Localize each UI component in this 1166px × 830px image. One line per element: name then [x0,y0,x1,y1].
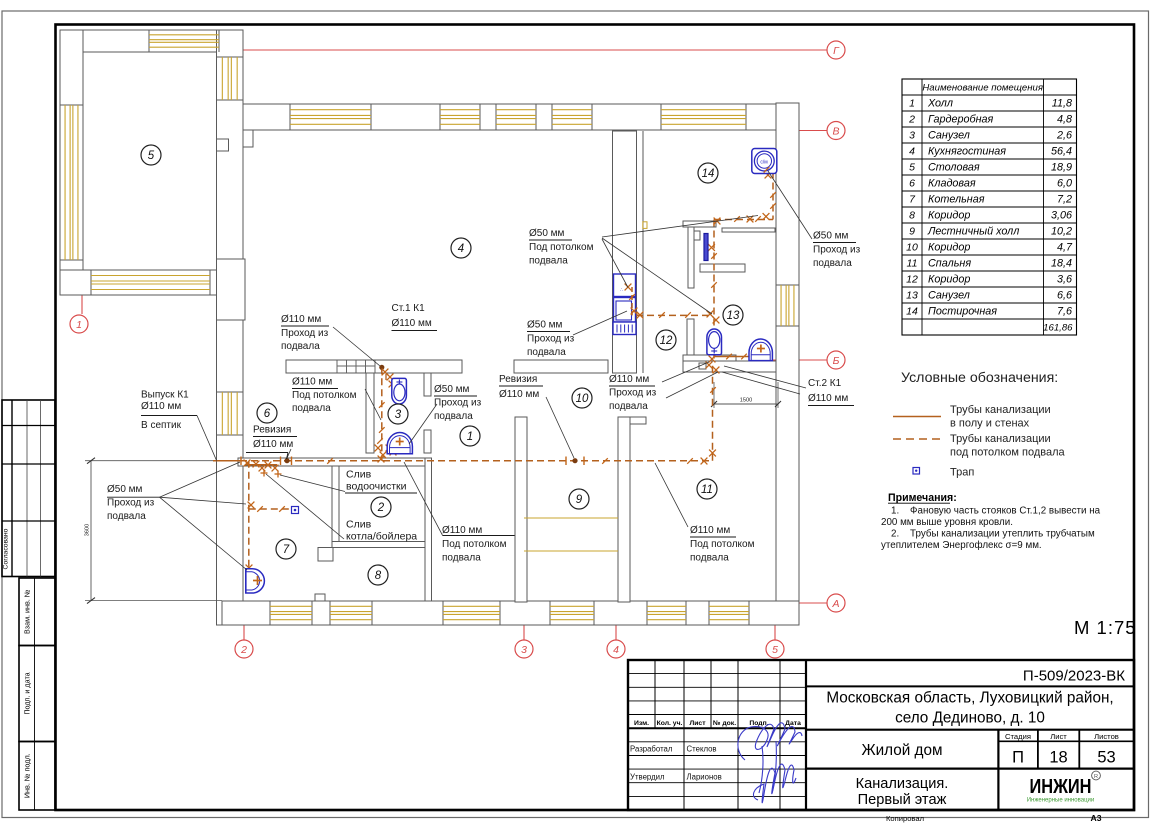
svg-text:6,0: 6,0 [1057,178,1072,190]
svg-text:Ø110 мм: Ø110 мм [499,389,539,400]
svg-text:с/м: с/м [760,159,768,165]
svg-text:подвала: подвала [281,341,320,352]
svg-text:Ø110 мм: Ø110 мм [609,374,649,385]
svg-text:8: 8 [909,210,915,222]
svg-text:Ларионов: Ларионов [687,773,722,782]
svg-text:2: 2 [240,644,247,656]
svg-text:3: 3 [909,130,915,142]
svg-text:Ревизия: Ревизия [499,374,537,385]
svg-text:Листов: Листов [1094,732,1119,741]
svg-text:3,06: 3,06 [1051,210,1072,222]
svg-text:10,2: 10,2 [1051,226,1072,238]
svg-text:Ø110 мм: Ø110 мм [808,393,848,404]
svg-text:6: 6 [909,178,915,190]
svg-text:Коридор: Коридор [928,242,970,254]
svg-text:1: 1 [467,431,473,443]
svg-text:7: 7 [283,544,290,556]
svg-text:Условные обозначения:: Условные обозначения: [901,370,1058,386]
svg-text:Проход из: Проход из [107,498,155,509]
svg-text:Ø50 мм: Ø50 мм [813,231,849,242]
svg-text:Ø110 мм: Ø110 мм [253,439,293,450]
svg-text:подвала: подвала [690,553,729,564]
svg-text:10: 10 [906,242,918,254]
svg-text:подвала: подвала [529,256,568,267]
svg-text:Санузел: Санузел [928,130,970,142]
svg-text:3600: 3600 [85,524,91,536]
svg-text:Спальня: Спальня [928,258,971,270]
svg-text:Ø110 мм: Ø110 мм [690,525,730,536]
svg-text:Коридор: Коридор [928,274,970,286]
svg-text:200 мм выше уровня кровли.: 200 мм выше уровня кровли. [881,517,1013,528]
svg-text:1: 1 [909,98,915,110]
svg-text:Московская область, Луховицкий: Московская область, Луховицкий район, [826,690,1113,707]
svg-text:Ст.1 К1: Ст.1 К1 [392,303,426,314]
svg-text:Котельная: Котельная [928,194,985,206]
svg-text:Ø50 мм: Ø50 мм [527,320,563,331]
svg-text:11: 11 [701,484,713,496]
svg-text:Первый этаж: Первый этаж [858,792,947,808]
svg-text:Дата: Дата [785,720,801,727]
svg-text:Проход из: Проход из [813,245,861,256]
svg-text:Под потолком: Под потолком [442,539,507,550]
svg-text:Взам. инв. №: Взам. инв. № [23,589,32,634]
svg-text:Гардеробная: Гардеробная [928,114,994,126]
svg-text:подвала: подвала [813,258,852,269]
svg-text:П-509/2023-ВК: П-509/2023-ВК [1023,668,1125,685]
svg-text:1500: 1500 [740,398,752,404]
svg-text:6: 6 [264,408,271,420]
svg-text:Согласовано: Согласовано [3,528,10,569]
svg-text:Коридор: Коридор [928,210,970,222]
svg-text:7,2: 7,2 [1057,194,1072,206]
svg-text:Проход из: Проход из [609,388,657,399]
svg-text:18,9: 18,9 [1051,162,1072,174]
svg-text:Слив: Слив [346,469,372,481]
svg-text:П: П [1012,749,1024,767]
svg-text:161,86: 161,86 [1043,323,1073,334]
svg-text:Выпуск К1: Выпуск К1 [141,390,189,401]
svg-text:Подп. и дата: Подп. и дата [23,672,32,714]
svg-text:4,8: 4,8 [1057,114,1072,126]
svg-text:Ревизия: Ревизия [253,425,291,436]
svg-text:Лист: Лист [689,720,706,727]
svg-text:Ø110 мм: Ø110 мм [281,314,321,325]
svg-text:5: 5 [772,644,778,656]
svg-text:Ø110 мм: Ø110 мм [141,401,181,412]
svg-text:Лестничный холл: Лестничный холл [927,226,1019,238]
svg-text:котла/бойлера: котла/бойлера [346,531,417,543]
svg-text:Ø50 мм: Ø50 мм [529,228,565,239]
svg-text:Примечания:: Примечания: [888,492,957,504]
svg-text:Ø50 мм: Ø50 мм [434,384,470,395]
svg-text:Холл: Холл [927,98,953,110]
svg-text:4,7: 4,7 [1057,242,1073,254]
svg-text:ИНЖИН: ИНЖИН [1030,775,1092,798]
svg-text:1. Фановую часть стояков Ст: 1. Фановую часть стояков Ст.1,2 вывести … [891,506,1101,517]
svg-text:Инженерные инновации: Инженерные инновации [1027,798,1095,804]
svg-text:Ø110 мм: Ø110 мм [442,525,482,536]
svg-text:3,6: 3,6 [1057,274,1072,286]
svg-text:3: 3 [395,409,402,421]
svg-text:9: 9 [576,494,583,506]
svg-text:село Дединово, д. 10: село Дединово, д. 10 [895,710,1045,727]
svg-text:4: 4 [909,146,915,158]
svg-text:2. Трубы канализации утепли: 2. Трубы канализации утеплить трубчатым [891,529,1095,540]
svg-text:14: 14 [702,168,715,180]
svg-text:подвала: подвала [107,511,146,522]
svg-text:13: 13 [727,310,740,322]
svg-text:Жилой дом: Жилой дом [861,742,942,759]
svg-text:14: 14 [906,306,918,318]
svg-text:утеплителем Энергофлекс σ=9 мм: утеплителем Энергофлекс σ=9 мм. [881,540,1042,551]
svg-text:Ст.2 К1: Ст.2 К1 [808,378,842,389]
svg-text:А3: А3 [1091,813,1102,823]
svg-text:Под потолком: Под потолком [690,539,755,550]
svg-text:Лист: Лист [1050,732,1067,741]
svg-text:В септик: В септик [141,420,182,431]
svg-text:12: 12 [660,335,673,347]
svg-text:56,4: 56,4 [1051,146,1072,158]
svg-text:11: 11 [907,258,918,270]
svg-text:Кладовая: Кладовая [928,178,976,190]
svg-text:Кухнягостиная: Кухнягостиная [928,146,1006,158]
svg-text:подвала: подвала [609,401,648,412]
svg-text:Проход из: Проход из [281,328,329,339]
svg-text:Ø110 мм: Ø110 мм [292,377,332,388]
svg-text:Наименование помещения: Наименование помещения [922,83,1043,94]
svg-text:4: 4 [613,644,619,656]
svg-text:Ø50 мм: Ø50 мм [107,484,143,495]
svg-text:Столовая: Столовая [928,162,980,174]
svg-text:7,6: 7,6 [1057,306,1072,318]
svg-text:Под потолком: Под потолком [529,242,594,253]
svg-text:11,8: 11,8 [1052,98,1072,110]
svg-text:R: R [1094,774,1098,780]
svg-text:В: В [832,125,839,137]
svg-text:Стеклов: Стеклов [687,745,717,754]
svg-text:Инв. № подл.: Инв. № подл. [23,753,32,798]
svg-text:3: 3 [521,644,527,656]
svg-text:Под потолком: Под потолком [292,390,357,401]
svg-text:М 1:75: М 1:75 [1074,617,1137,638]
svg-text:Изм.: Изм. [634,720,649,727]
svg-text:53: 53 [1097,749,1115,767]
svg-text:Трубы канализации: Трубы канализации [950,404,1051,416]
svg-text:Кол. уч.: Кол. уч. [657,720,683,727]
svg-text:Санузел: Санузел [928,290,970,302]
svg-text:Постирочная: Постирочная [928,306,997,318]
svg-text:Трап: Трап [950,467,974,479]
svg-text:Б: Б [833,355,840,367]
svg-text:1: 1 [76,319,82,331]
svg-text:10: 10 [576,393,589,405]
svg-text:Утвердил: Утвердил [630,773,665,782]
svg-text:5: 5 [148,150,155,162]
svg-text:12: 12 [906,274,918,286]
svg-text:2: 2 [377,502,385,514]
svg-text:в полу и стенах: в полу и стенах [950,418,1030,430]
svg-text:Трубы канализации: Трубы канализации [950,433,1051,445]
svg-text:подвала: подвала [434,411,473,422]
svg-text:5: 5 [909,162,915,174]
svg-text:Слив: Слив [346,519,372,531]
svg-text:9: 9 [909,226,915,238]
svg-text:Стадия: Стадия [1005,732,1031,741]
svg-text:18,4: 18,4 [1051,258,1072,270]
svg-text:Проход из: Проход из [527,334,575,345]
svg-text:8: 8 [375,570,382,582]
svg-text:Ø110 мм: Ø110 мм [392,318,432,329]
svg-text:Проход из: Проход из [434,398,482,409]
svg-text:под потолком подвала: под потолком подвала [950,447,1066,459]
svg-text:4: 4 [458,243,464,255]
svg-text:водоочистки: водоочистки [346,481,407,493]
svg-text:подвала: подвала [442,553,481,564]
svg-text:13: 13 [906,290,918,302]
svg-text:18: 18 [1049,749,1067,767]
svg-text:подвала: подвала [292,403,331,414]
svg-text:∴: ∴ [620,287,623,293]
svg-text:2: 2 [908,114,915,126]
svg-text:подвала: подвала [527,347,566,358]
svg-text:Копировал: Копировал [886,814,924,823]
svg-text:А: А [831,598,839,610]
svg-text:6,6: 6,6 [1057,290,1072,302]
svg-text:Разработал: Разработал [630,745,673,754]
svg-text:Канализация.: Канализация. [856,776,949,792]
svg-text:2,6: 2,6 [1056,130,1072,142]
svg-text:№ док.: № док. [713,720,736,727]
